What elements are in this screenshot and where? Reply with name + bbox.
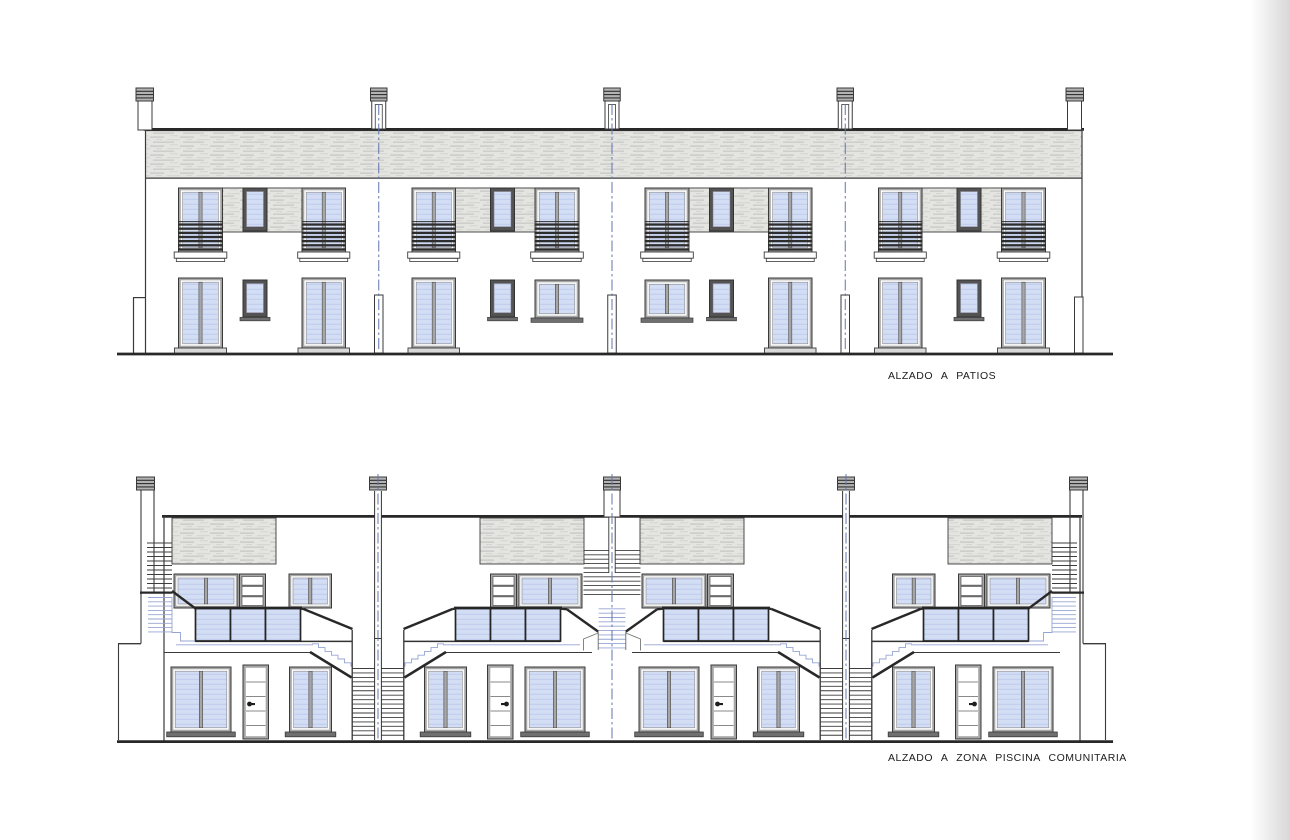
elevations-drawing xyxy=(0,0,1290,840)
elevation-piscina xyxy=(117,474,1113,742)
elevation-title-piscina: ALZADO A ZONA PISCINA COMUNITARIA xyxy=(888,752,1127,764)
elevation-title-patios: ALZADO A PATIOS xyxy=(888,370,996,382)
plan-sheet: ALZADO A PATIOS ALZADO A ZONA PISCINA CO… xyxy=(0,0,1290,840)
elevation-patios xyxy=(117,88,1113,354)
patios-chimneys xyxy=(136,88,1084,130)
page-edge-shadow xyxy=(1250,0,1290,840)
